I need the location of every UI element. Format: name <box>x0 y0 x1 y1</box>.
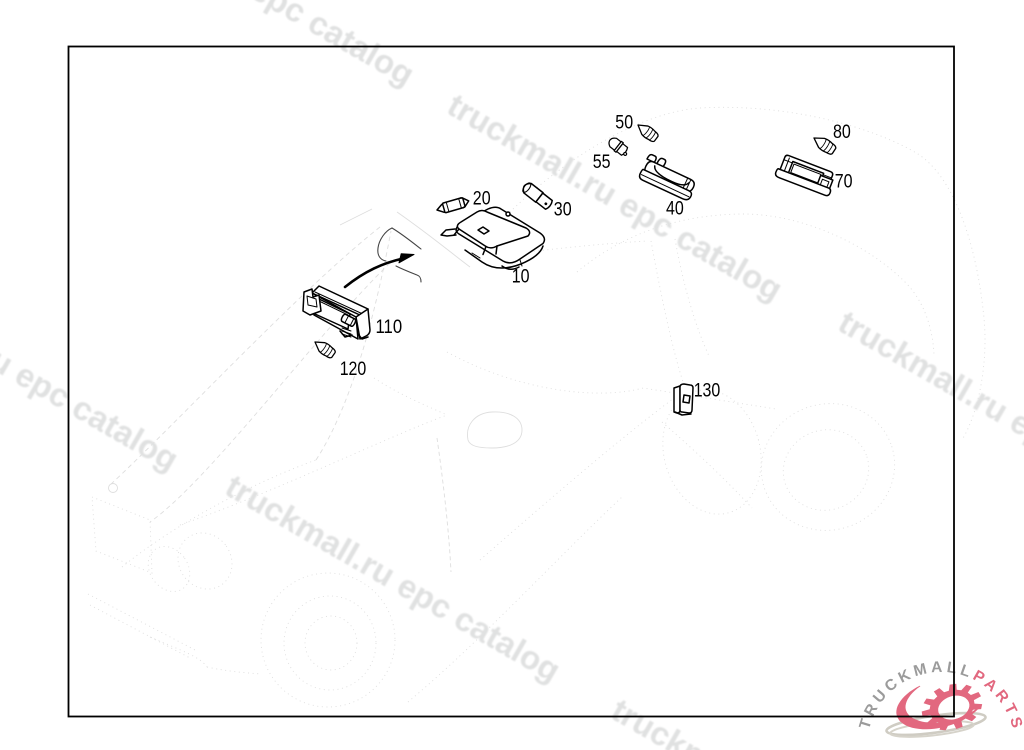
svg-text:130: 130 <box>694 380 721 402</box>
svg-text:30: 30 <box>554 199 572 221</box>
svg-text:10: 10 <box>512 265 530 287</box>
svg-text:80: 80 <box>833 121 851 143</box>
svg-text:55: 55 <box>593 151 611 173</box>
svg-text:120: 120 <box>340 358 367 380</box>
svg-text:70: 70 <box>835 171 853 193</box>
svg-text:40: 40 <box>666 198 684 220</box>
svg-text:20: 20 <box>473 187 491 209</box>
svg-text:110: 110 <box>376 316 403 338</box>
svg-text:50: 50 <box>615 111 633 133</box>
